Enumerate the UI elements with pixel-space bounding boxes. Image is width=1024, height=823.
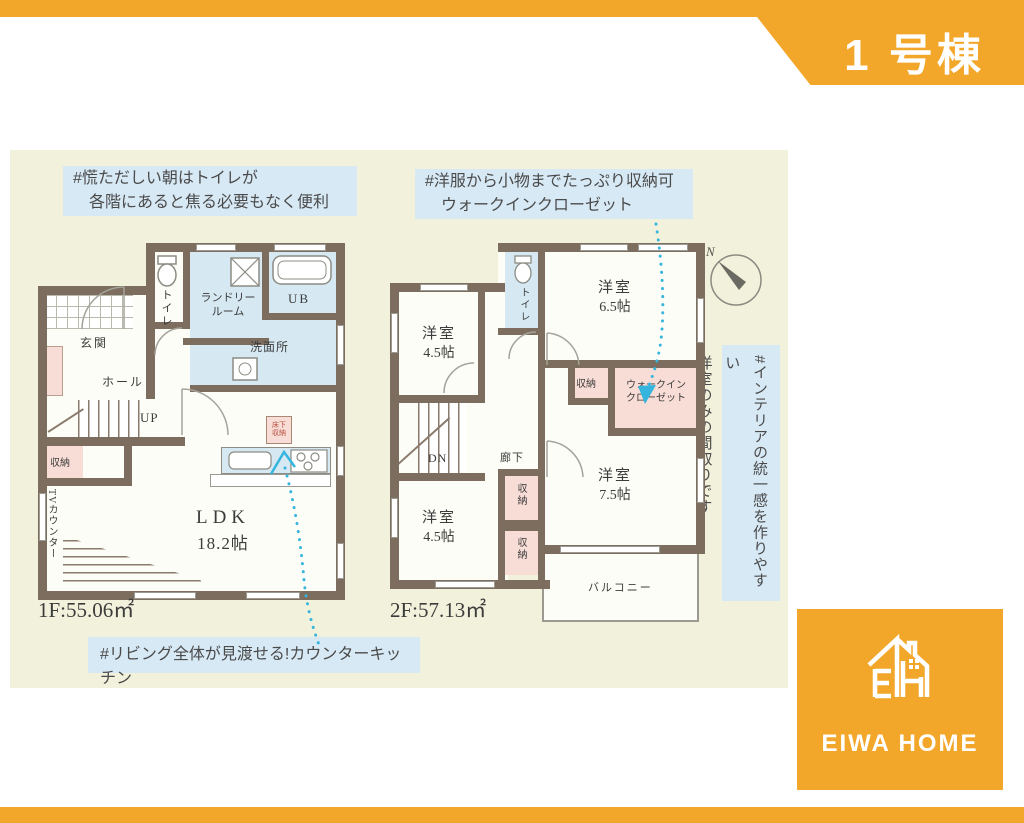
underfloor-label-2: 収納 [267,430,291,438]
wall [608,360,615,431]
wall [45,437,185,446]
window [391,498,398,538]
label-tv-counter: TVカウンター [44,489,59,559]
label-dn: DN [428,451,447,466]
label-storage-c1: 収納 [513,483,528,507]
wall [262,313,345,320]
window [391,313,398,353]
label-up: UP [140,410,159,426]
note-toilet-line1: #慌ただしい朝はトイレが [73,167,347,191]
balcony-door-window [560,546,660,553]
wall [478,292,485,403]
label-storage-mid: 収納 [576,375,596,390]
label-entrance: 玄関 [80,334,108,351]
floor2-plan: トイレ 洋室 6.5帖 洋室 4.5帖 収納 ウォークイン クローゼット DN … [390,243,705,625]
underfloor-label-1: 床下 [267,422,291,430]
label-hall: ホール [102,373,144,390]
wall [390,395,485,403]
label-wic: ウォークイン クローゼット [616,379,696,405]
window [337,446,344,476]
label-balcony: バルコニー [588,579,653,595]
wall [538,243,545,583]
window [134,592,196,599]
label-washroom: 洗面所 [250,338,289,355]
window [246,592,300,599]
note-interior-line1: #インテリアの統一感を作りやすい [718,355,774,591]
window [196,244,236,251]
bathtub-icon [272,255,332,285]
washing-machine-icon [230,257,260,287]
wall [498,469,505,589]
note-closet: #洋服から小物までたっぷり収納可 ウォークインクローゼット [415,169,693,219]
bottom-accent-bar [0,807,1024,823]
wall [608,428,705,436]
wall [124,445,132,486]
label-toilet-2f: トイレ [516,287,531,323]
label-toilet-1f: トイレ [158,289,174,328]
flyer-page: 1 号棟 #慌ただしい朝はトイレが 各階にあると焦る必要もなく便利 #洋服から小… [0,0,1024,823]
wall [696,243,705,554]
wall [390,473,485,481]
note-closet-line2: ウォークインクローゼット [425,194,683,218]
compass-n-label: N [705,244,716,259]
window [435,581,495,588]
ldk-door-arc [180,387,230,437]
window [697,298,704,343]
window [420,284,468,291]
window [337,325,344,365]
wall [45,478,129,486]
room65-door-arc [545,331,581,367]
label-corridor: 廊下 [500,449,524,465]
toilet-door-arc-2f [508,331,538,361]
kitchen-counter-front [210,474,331,487]
label-laundry: ランドリー ルーム [188,291,268,319]
label-ldk: LDK 18.2帖 [168,507,278,554]
entrance-door-arc [80,285,126,331]
building-number-banner: 1 号棟 [757,17,1024,85]
wall [498,469,545,476]
compass-needle [718,261,746,290]
top-accent-bar [0,0,1024,17]
note-toilet: #慌ただしい朝はトイレが 各階にあると焦る必要もなく便利 [63,166,357,216]
label-room75: 洋室 7.5帖 [570,467,660,505]
window [274,244,326,251]
note-closet-line1: #洋服から小物までたっぷり収納可 [425,170,683,194]
label-ub: UB [288,291,310,307]
eiwa-home-logo-text: EIWA HOME [797,730,1003,758]
window [697,458,704,503]
floor2-area-label: 2F:57.13㎡ [390,594,486,624]
window [638,244,688,251]
note-toilet-line2: 各階にあると焦る必要もなく便利 [73,191,347,215]
room45-door-arc [442,361,476,395]
label-room45-upper: 洋室 4.5帖 [400,325,478,363]
stairs-up [78,400,140,437]
underfloor-storage: 床下 収納 [266,416,292,444]
window [580,244,628,251]
logo-block: EIWA HOME [797,609,1003,790]
toilet-icon [154,255,180,289]
toilet-icon-2f [512,255,534,285]
label-room65: 洋室 6.5帖 [570,279,660,317]
floor1-plan: 床下 収納 [38,243,345,600]
note-interior: #インテリアの統一感を作りやすい 洋室のみの間取りです [722,345,780,601]
stove-icon [290,449,328,473]
building-number-label: 1 号棟 [844,19,985,83]
wall [568,398,615,405]
compass: N [698,240,768,310]
note-kitchen-line1: #リビング全体が見渡せる!カウンターキッチン [100,643,408,691]
toilet-door-arc [154,327,184,357]
label-storage-1f: 収納 [50,454,70,469]
kitchen-sink-icon [228,451,272,470]
eiwa-home-logo-icon [865,633,937,705]
floor1-area-label: 1F:55.06㎡ [38,594,134,624]
washbasin-icon [232,357,258,381]
wall [498,520,545,531]
label-room45-lower: 洋室 4.5帖 [400,509,478,547]
note-kitchen: #リビング全体が見渡せる!カウンターキッチン [88,637,420,673]
label-storage-c2: 収納 [513,537,528,561]
window [337,543,344,579]
